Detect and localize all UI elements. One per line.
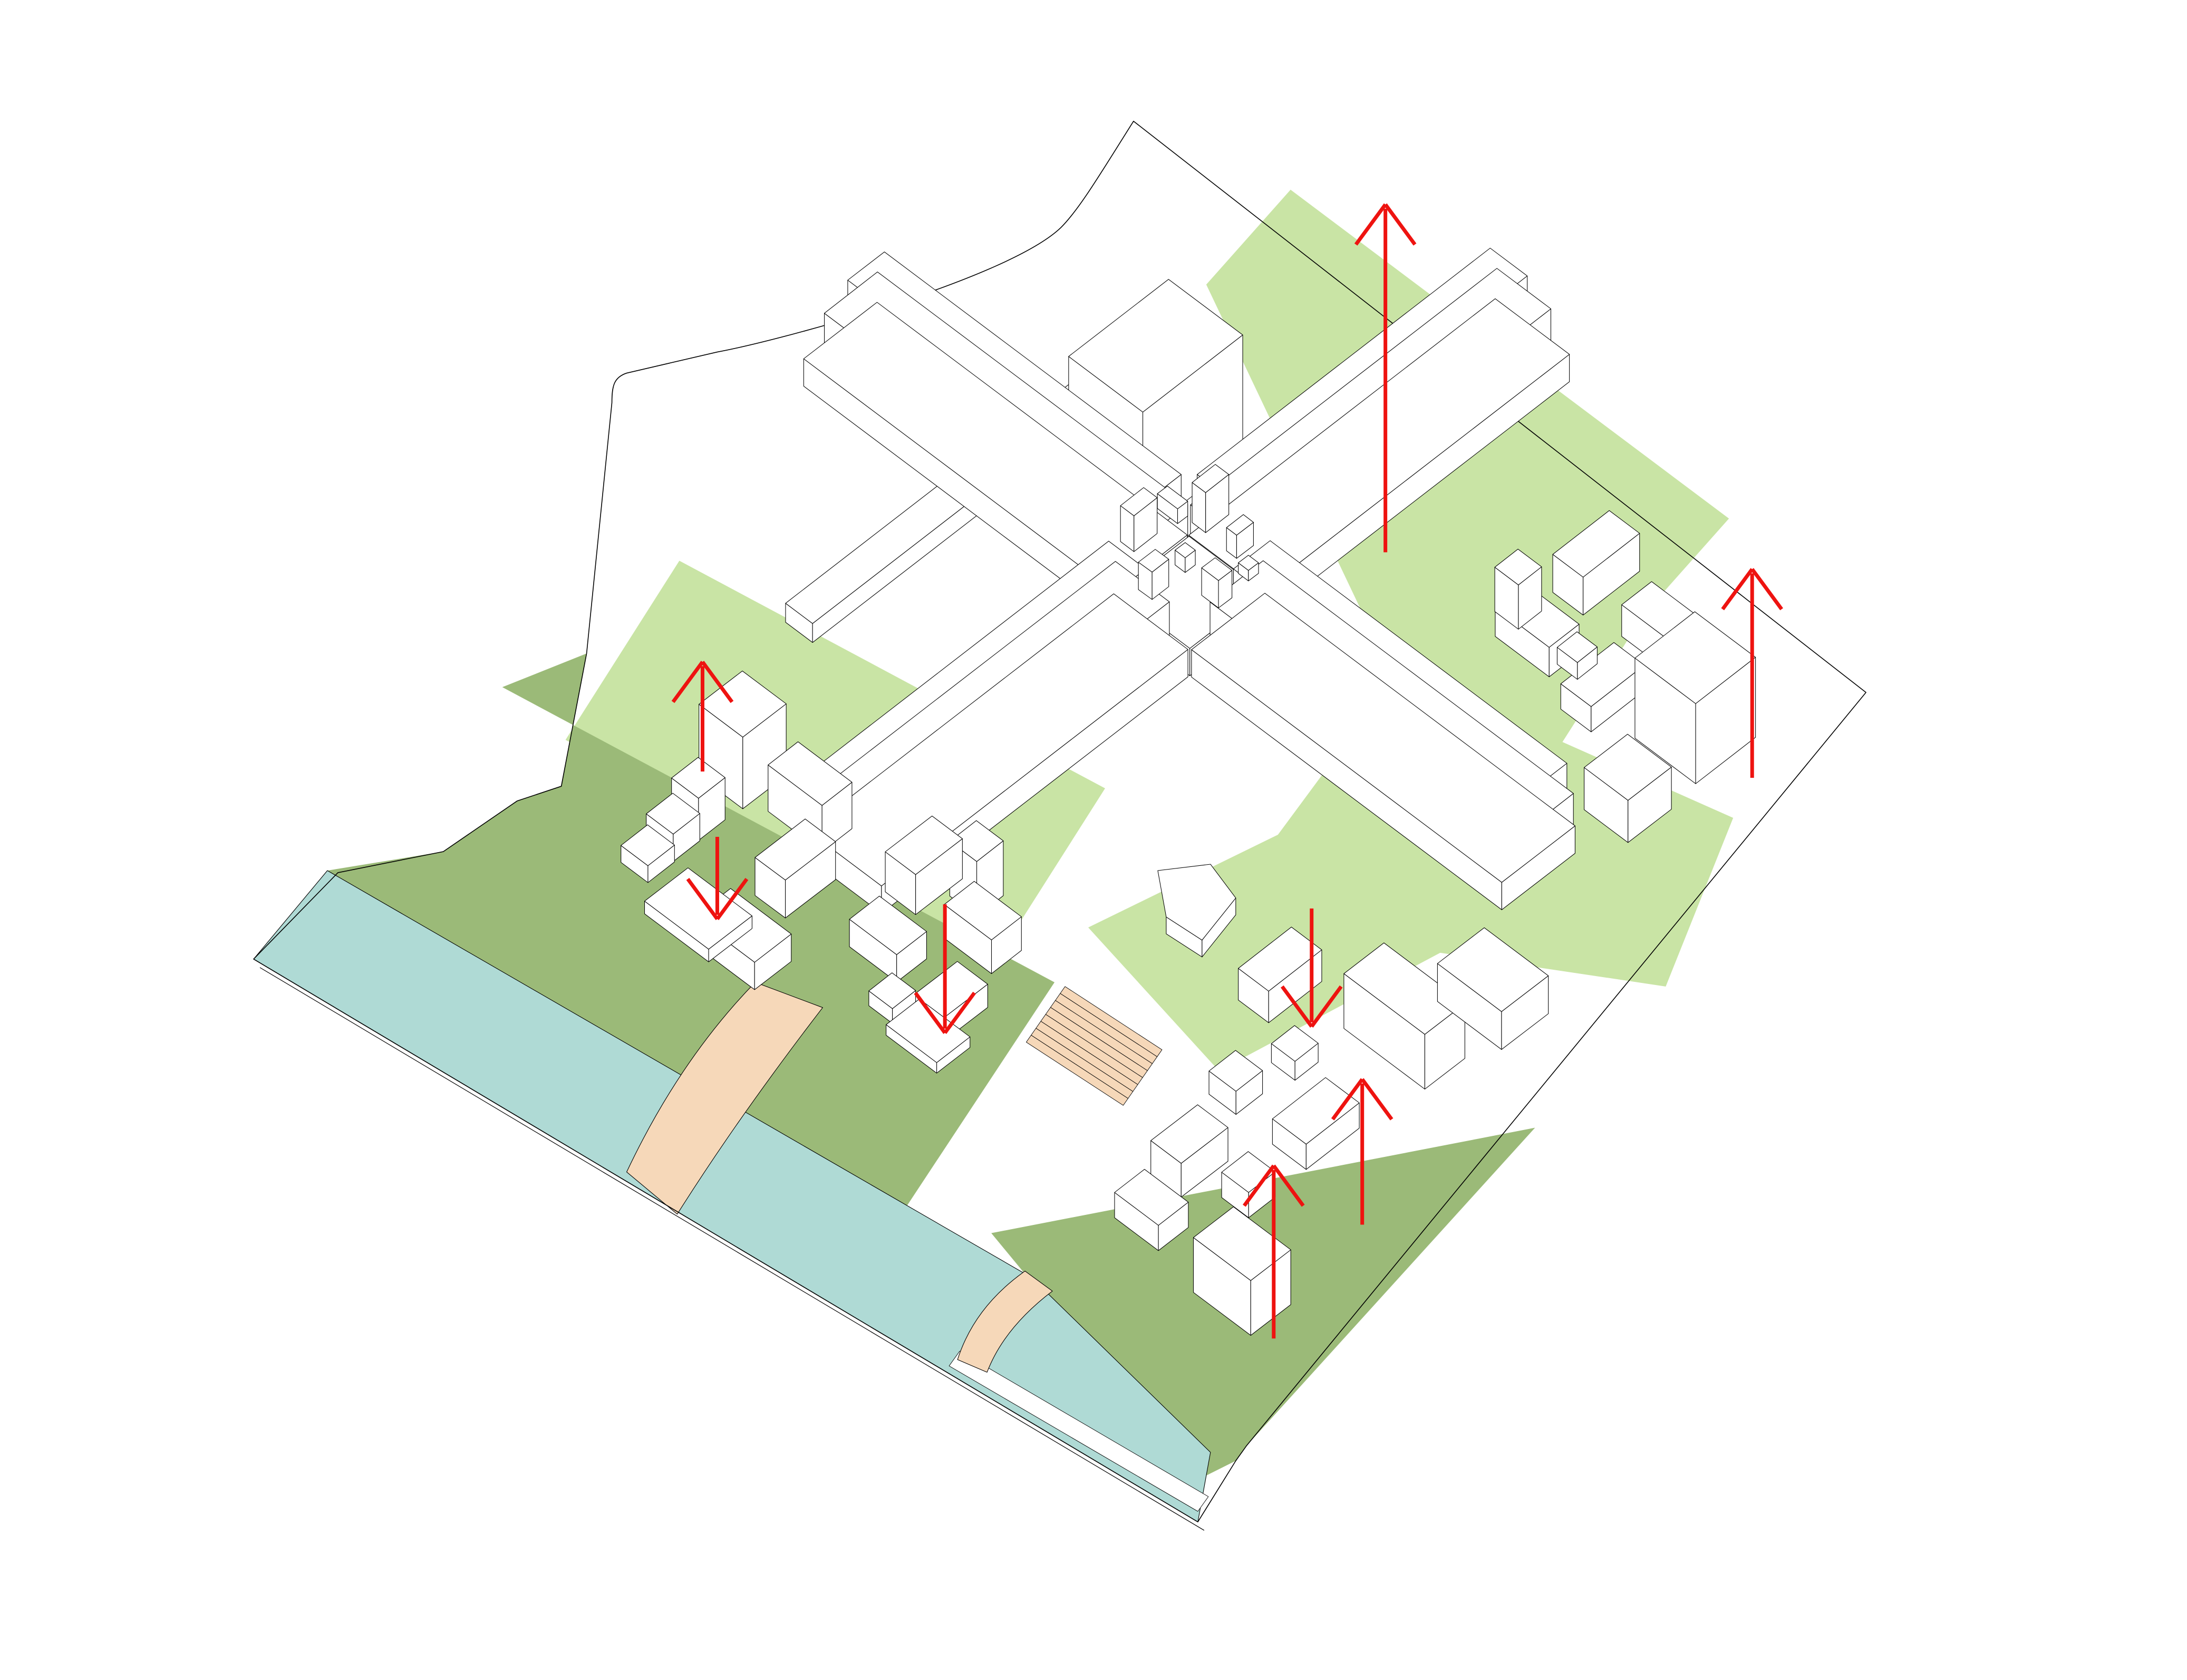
arrow-north-head-right	[1386, 205, 1415, 245]
arrow-mid-up-head-right	[1362, 1079, 1392, 1119]
mid-court-south	[1272, 1078, 1359, 1170]
arrow-east-head-right	[1752, 569, 1782, 609]
axonometric-massing-diagram	[0, 0, 2187, 1680]
diagram-stage	[0, 0, 2187, 1680]
river-steps-layer	[1026, 987, 1162, 1105]
arrow-east-head-left	[1722, 569, 1752, 609]
arrow-north-head-left	[1356, 205, 1386, 245]
